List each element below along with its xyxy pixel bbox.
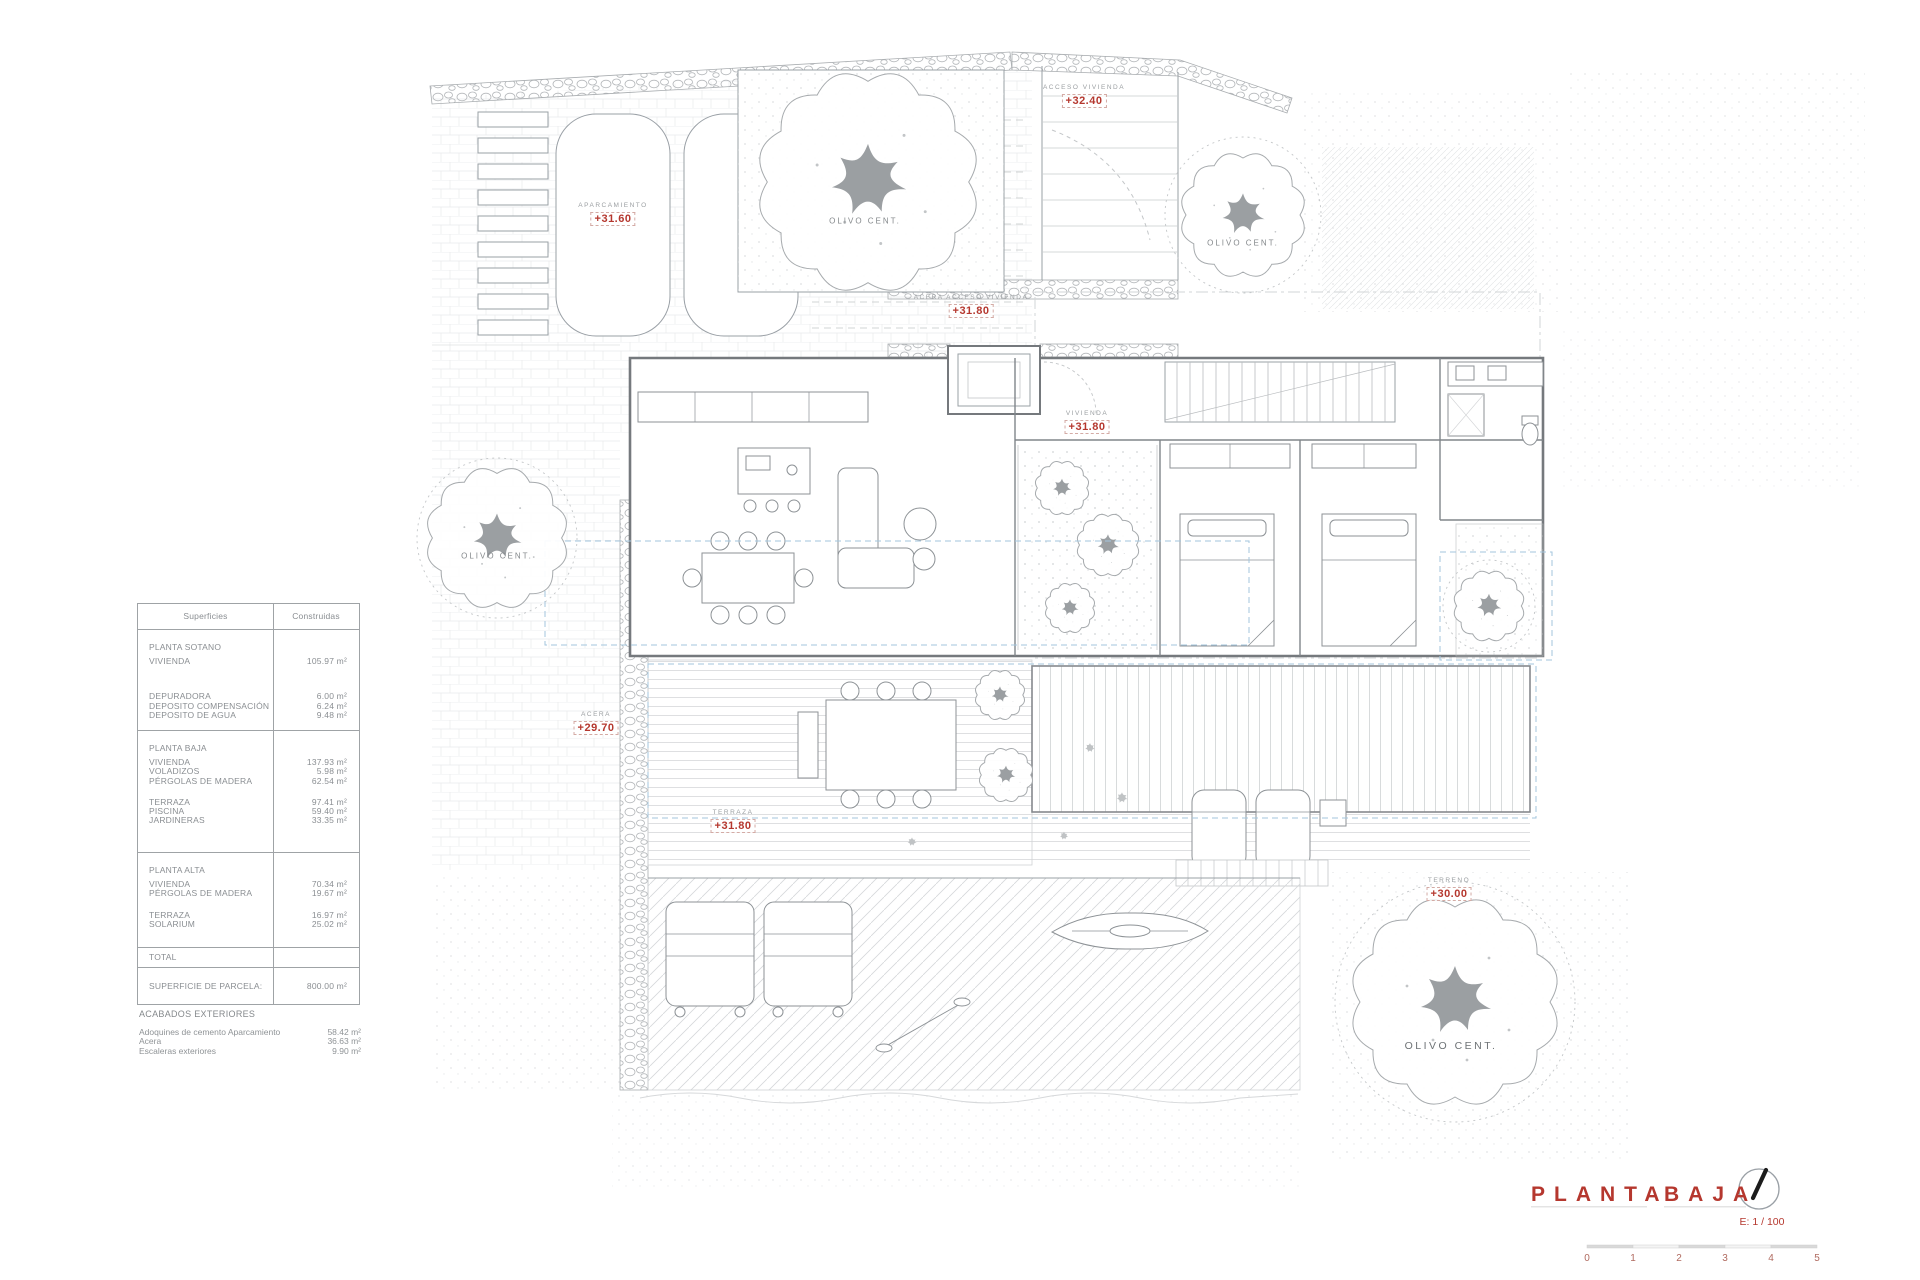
table-row: PLANTA SOTANO [138,643,359,652]
scale-bar [1587,1245,1817,1248]
elevation-label-terraza: TERRAZA +31.80 [711,809,756,834]
table-group-baja: PLANTA BAJA VIVIENDA137.93 m² VOLADIZOS5… [138,731,359,853]
olive-tree-label: OLIVO CENT. [1207,239,1279,248]
table-group-alta: PLANTA ALTA VIVIENDA70.34 m² PÉRGOLAS DE… [138,853,359,948]
floor-plan-sheet: Superficies Construidas PLANTA SOTANO VI… [0,0,1920,1280]
scale-tick: 4 [1768,1253,1774,1264]
table-row-parcela: SUPERFICIE DE PARCELA: 800.00 m² [138,968,359,1005]
scale-tick: 2 [1676,1253,1682,1264]
olive-tree-bottomright [1353,900,1557,1104]
table-header: Superficies Construidas [138,604,359,630]
finish-row: Escaleras exteriores9.90 m² [139,1047,361,1057]
elevation-label-acceso-vivienda: ACCESO VIVIENDA +32.40 [1043,84,1125,109]
elevation-label-vivienda: VIVIENDA +31.80 [1065,410,1110,435]
olive-tree-label: OLIVO CENT. [461,552,533,561]
col-surfaces: Superficies [138,612,273,621]
table-row-total: TOTAL [138,948,359,968]
scale-note: E: 1 / 100 [1740,1216,1785,1228]
elevation-label-terreno: TERRENO +30.00 [1427,877,1472,902]
lower-deck [640,878,1300,1103]
olive-tree-left [428,469,567,608]
table-row: PLANTA ALTA [138,866,359,875]
table-group-sotano: PLANTA SOTANO VIVIENDA105.97 m² DEPURADO… [138,630,359,731]
surfaces-table: Superficies Construidas PLANTA SOTANO VI… [137,603,360,1005]
sheet-title-word1: PLANTA [1531,1183,1669,1207]
elevation-label-acera-acceso: ACERA ACCESO VIVIENDA +31.80 [914,294,1029,319]
scale-tick: 5 [1814,1253,1820,1264]
olive-tree-label: OLIVO CENT. [829,217,901,226]
elevation-label-acera: ACERA +29.70 [574,711,619,736]
stairs [1165,362,1395,422]
exterior-finishes: ACABADOS EXTERIORES Adoquines de cemento… [139,1010,361,1056]
exterior-finishes-title: ACABADOS EXTERIORES [139,1010,361,1020]
table-row: SOLARIUM25.02 m² [138,920,359,929]
table-row: VIVIENDA105.97 m² [138,657,359,666]
table-row: DEPOSITO DE AGUA9.48 m² [138,711,359,720]
table-column-divider [273,604,274,1004]
sheet-title-word2: BAJA [1664,1183,1757,1207]
olive-tree-top [760,74,976,290]
table-row: PÉRGOLAS DE MADERA62.54 m² [138,777,359,786]
scale-tick: 3 [1722,1253,1728,1264]
olive-tree-topright [1182,154,1304,276]
table-row: PÉRGOLAS DE MADERA19.67 m² [138,889,359,898]
scale-tick: 0 [1584,1253,1590,1264]
table-row: PLANTA BAJA [138,744,359,753]
entry-vestibule [948,346,1040,414]
table-row: JARDINERAS33.35 m² [138,816,359,825]
elevation-label-aparcamiento: APARCAMIENTO +31.60 [578,202,647,227]
courtyard [1020,446,1155,652]
col-built: Construidas [273,612,359,621]
olive-tree-label: OLIVO CENT. [1405,1040,1498,1052]
olive-tree-smallright [1454,571,1523,640]
scale-tick: 1 [1630,1253,1636,1264]
terrace [648,660,1530,886]
house [630,346,1543,656]
